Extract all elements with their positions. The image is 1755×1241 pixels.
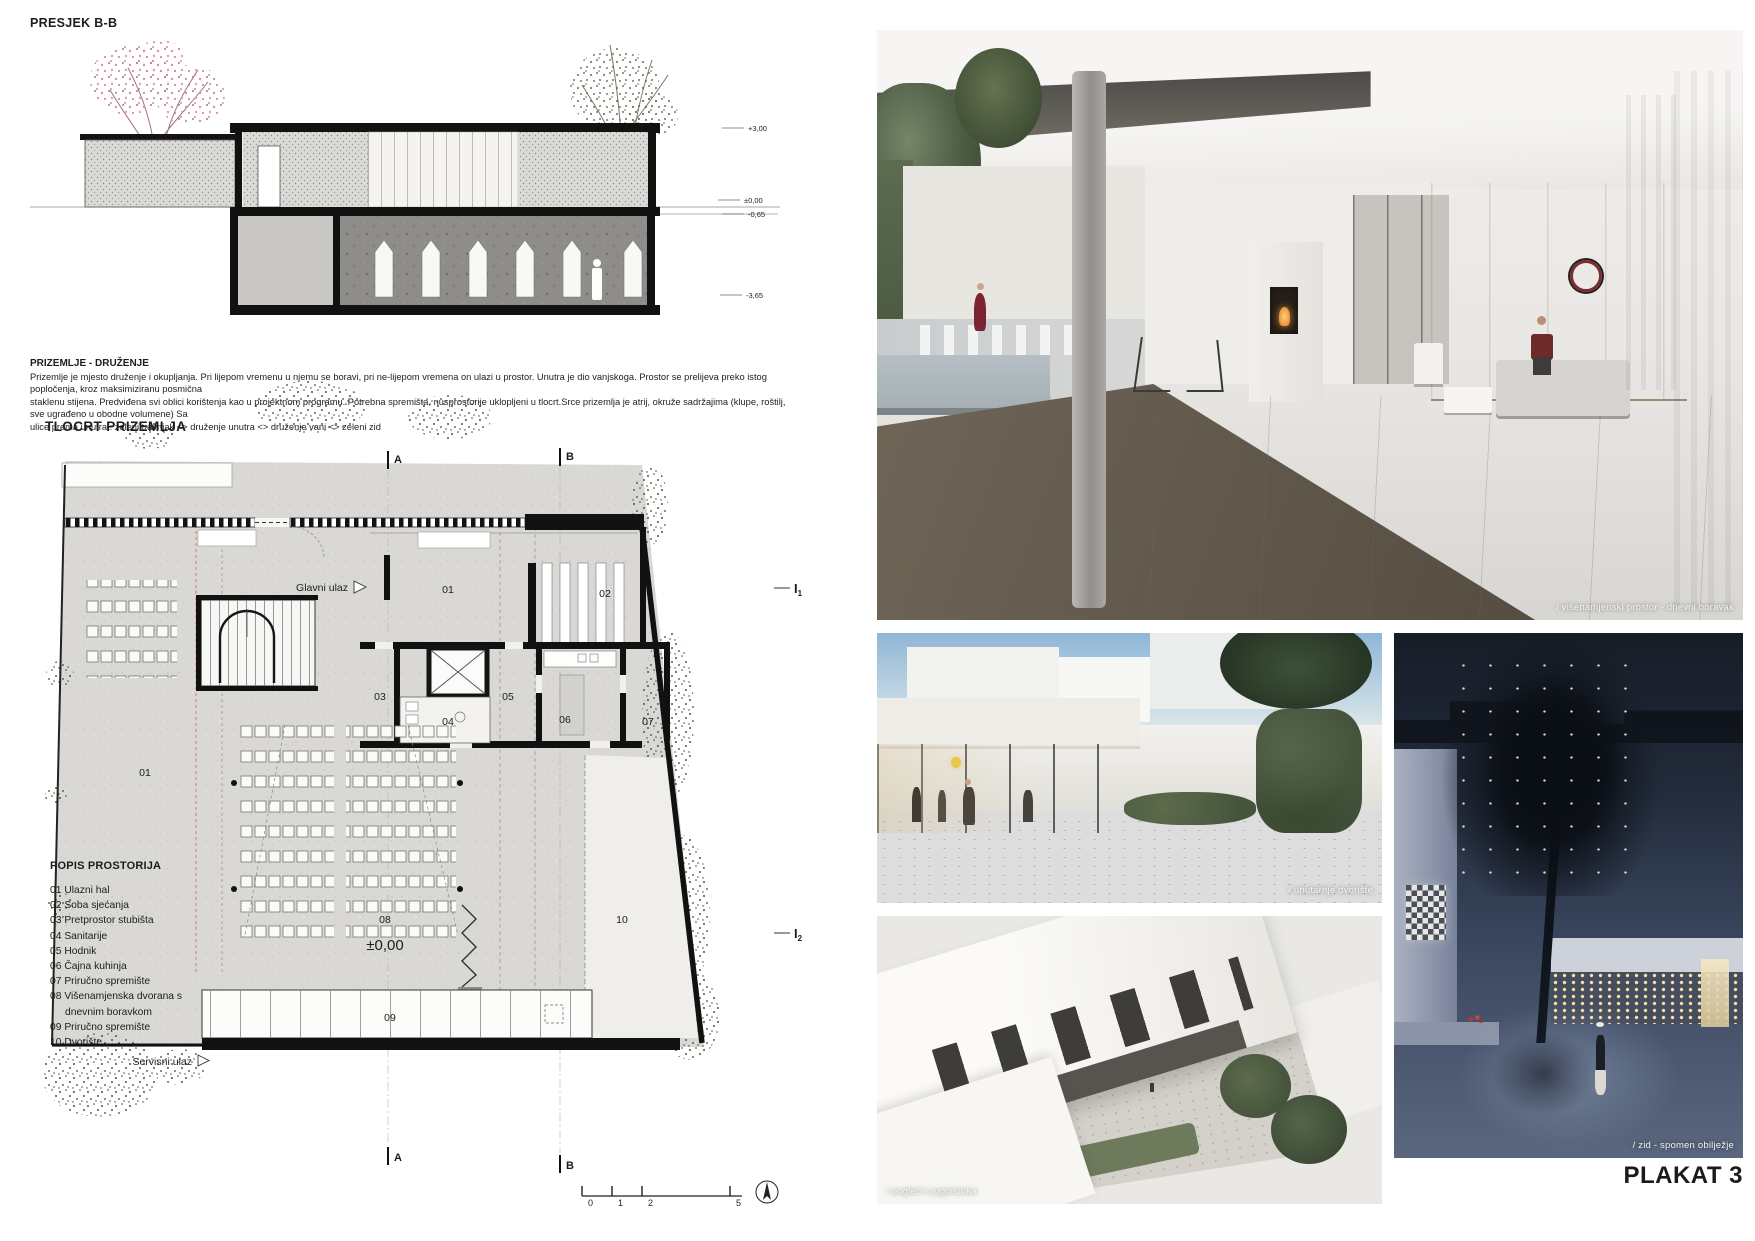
room-list-item: 02 Soba sjećanja — [50, 898, 265, 913]
scale-bar: 0 1 2 5 — [582, 1186, 742, 1208]
main-entrance-label: Glavni ulaz — [296, 582, 348, 594]
concrete-column — [1072, 71, 1107, 608]
room-list-item: 03 Pretprostor stubišta — [50, 913, 265, 928]
level-label: -0,65 — [748, 210, 765, 219]
aerial-render: / pogled s jugoistoka — [877, 916, 1382, 1204]
svg-text:5: 5 — [736, 1198, 741, 1208]
room-number: 04 — [442, 716, 454, 728]
svg-text:A: A — [394, 454, 402, 466]
sofa — [1496, 360, 1630, 416]
door-opening — [258, 146, 280, 207]
basement-left-room — [237, 216, 335, 308]
level-mark: ±0,00 — [366, 937, 403, 954]
curtain — [1674, 71, 1743, 608]
render-caption: / zid - spomen obilježje — [1633, 1140, 1734, 1151]
person-silhouette — [1150, 1083, 1154, 1092]
level-label: +3,00 — [748, 124, 767, 133]
child-figure — [974, 293, 986, 331]
chair-silhouette — [1133, 337, 1177, 392]
entrance-canopy — [62, 463, 232, 487]
child-figure — [963, 787, 975, 825]
plan-title: TLOCRT PRIZEMLJA — [45, 419, 186, 434]
section-drawing: +3,00 ±0,00 -0,65 -3,65 — [30, 20, 780, 332]
courtyard-render: / unutarnje dvorište — [877, 633, 1382, 903]
floor-plan-drawing: Glavni ulaz Servisni ulaz 01 02 03 04 05… — [30, 375, 820, 1215]
room-list-item: 05 Hodnik — [50, 944, 265, 959]
left-roof-slab — [80, 134, 242, 140]
svg-text:B: B — [566, 1160, 574, 1172]
basement-divider — [333, 216, 340, 308]
render-caption: / višenamjenski prostor - dnevni boravak — [1556, 602, 1734, 613]
pool-water — [877, 355, 1050, 408]
seating-block-01 — [85, 580, 177, 678]
room-list: POPIS PROSTORIJA 01 Ulazni hal 02 Soba s… — [50, 860, 265, 1050]
elevation-marks: +3,00 ±0,00 -0,65 -3,65 — [718, 124, 767, 300]
room-list-item: 09 Priručno spremište — [50, 1020, 265, 1035]
bushes — [1124, 792, 1255, 824]
glazing-mullions — [368, 132, 518, 207]
room-number: 03 — [374, 691, 386, 703]
room-list-item: 07 Priručno spremište — [50, 974, 265, 989]
dartboard — [1570, 260, 1602, 292]
render-caption: / pogled s jugoistoka — [886, 1186, 977, 1197]
lit-doorway — [1701, 959, 1729, 1027]
courtyard-area — [585, 755, 698, 1038]
lounge-chairs — [920, 325, 1085, 355]
tree-canopy — [1271, 1095, 1347, 1164]
room-list-item: 06 Čajna kuhinja — [50, 959, 265, 974]
room-list-item: dnevnim boravkom — [50, 1005, 265, 1020]
room-list-item: 01 Ulazni hal — [50, 883, 265, 898]
room-number: 10 — [616, 914, 628, 926]
bench — [418, 532, 490, 548]
basement-floor-slab — [230, 305, 660, 315]
person-silhouette — [938, 790, 946, 822]
person-silhouette — [912, 787, 921, 822]
intro-heading: PRIZEMLJE - DRUŽENJE — [30, 358, 786, 369]
staircase — [196, 595, 318, 691]
basement-wall-left — [230, 216, 238, 315]
perforated-panel-right — [518, 132, 648, 207]
checkered-panel — [1406, 885, 1446, 940]
floor-seams — [1050, 396, 1743, 620]
balloon — [951, 757, 961, 768]
floor-slab — [230, 207, 660, 216]
room-list-title: POPIS PROSTORIJA — [50, 860, 265, 872]
fire-flame — [1279, 307, 1290, 326]
svg-text:A: A — [394, 1152, 402, 1164]
white-chair — [1414, 343, 1443, 384]
room-list-item: 04 Sanitarije — [50, 929, 265, 944]
room-number: 09 — [384, 1012, 396, 1024]
pavilion-roof — [877, 698, 1140, 750]
poster-number: PLAKAT 3 — [1394, 1162, 1743, 1190]
level-label: ±0,00 — [744, 196, 763, 205]
room-number: 01 — [442, 584, 454, 596]
person-silhouette — [1023, 790, 1032, 822]
room-number: 05 — [502, 691, 514, 703]
svg-text:1: 1 — [618, 1198, 623, 1208]
level-label: -3,65 — [746, 291, 763, 300]
tree-shadow — [1492, 1032, 1597, 1116]
room-number: 08 — [379, 914, 391, 926]
column-left — [235, 132, 242, 207]
string-lights — [1450, 654, 1645, 875]
column-right — [648, 132, 656, 207]
room-number: 06 — [559, 714, 571, 726]
svg-text:I1: I1 — [794, 581, 803, 598]
person-figure — [1595, 1022, 1606, 1096]
hedge — [955, 48, 1042, 148]
svg-text:B: B — [566, 451, 574, 463]
north-arrow-icon — [756, 1181, 778, 1203]
curtain — [1626, 95, 1678, 390]
room-number: 07 — [642, 716, 654, 728]
room-list-item: 10 Dvorište — [50, 1035, 265, 1050]
wall-segment — [384, 555, 390, 600]
main-render: / višenamjenski prostor - dnevni boravak — [877, 30, 1743, 620]
room-number: 02 — [599, 588, 611, 600]
left-block-wall — [85, 140, 235, 207]
seated-person — [1531, 316, 1554, 375]
night-render: / zid - spomen obilježje — [1394, 633, 1743, 1158]
wall-segment — [640, 527, 646, 642]
shrubs — [1256, 709, 1362, 833]
hall-seating — [231, 720, 463, 942]
room-list-item: 08 Višenamjenska dvorana s — [50, 989, 265, 1004]
room-number: 01 — [139, 767, 151, 779]
chair-silhouette — [1182, 340, 1224, 392]
service-entrance-label: Servisni ulaz — [132, 1056, 192, 1068]
svg-text:I2: I2 — [794, 926, 803, 943]
elevator-shaft — [429, 648, 487, 696]
reception-desk — [198, 530, 256, 546]
south-wall — [202, 1038, 680, 1050]
basement-wall-right — [647, 216, 655, 315]
main-roof-slab — [230, 123, 660, 133]
svg-text:0: 0 — [588, 1198, 593, 1208]
render-caption: / unutarnje dvorište — [1288, 885, 1373, 896]
svg-text:2: 2 — [648, 1198, 653, 1208]
coffee-table — [1444, 387, 1492, 414]
